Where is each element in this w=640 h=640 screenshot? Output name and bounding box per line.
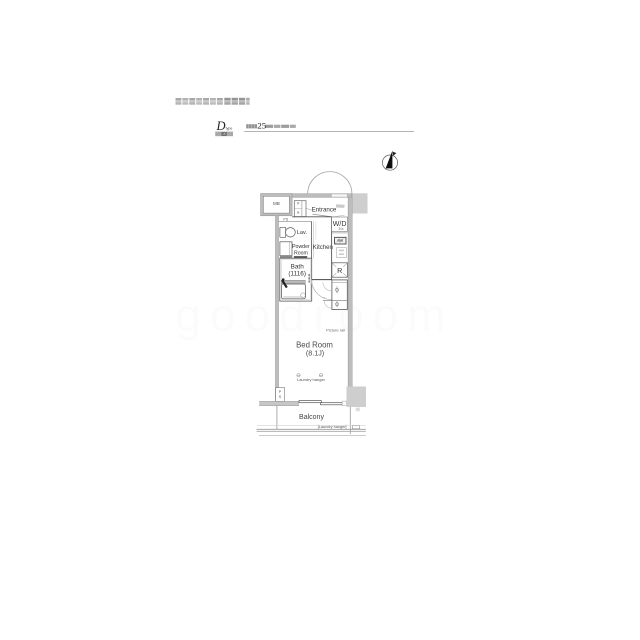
svg-text:(1116): (1116)	[288, 271, 306, 278]
svg-text:Laundry hanger: Laundry hanger	[319, 425, 346, 429]
svg-text:Picture rail: Picture rail	[326, 328, 345, 333]
svg-text:Lav.: Lav.	[297, 230, 308, 236]
svg-text:Kitchen: Kitchen	[313, 245, 333, 251]
svg-text:Bath: Bath	[291, 263, 305, 270]
svg-text:(8.1J): (8.1J)	[306, 349, 324, 358]
svg-text:R: R	[337, 266, 342, 275]
svg-text:Laundry hanger: Laundry hanger	[297, 377, 326, 382]
svg-text:30s: 30s	[338, 227, 344, 231]
svg-text:PS: PS	[283, 217, 288, 221]
svg-text:D: D	[216, 119, 226, 133]
svg-text:Balcony: Balcony	[299, 414, 324, 421]
svg-text:Room: Room	[294, 250, 308, 256]
svg-text:Entrance: Entrance	[312, 206, 337, 213]
svg-text:MB: MB	[273, 201, 280, 206]
svg-text:goodroom: goodroom	[175, 289, 454, 341]
svg-text:Powder: Powder	[292, 244, 310, 250]
svg-text:type: type	[226, 127, 233, 131]
